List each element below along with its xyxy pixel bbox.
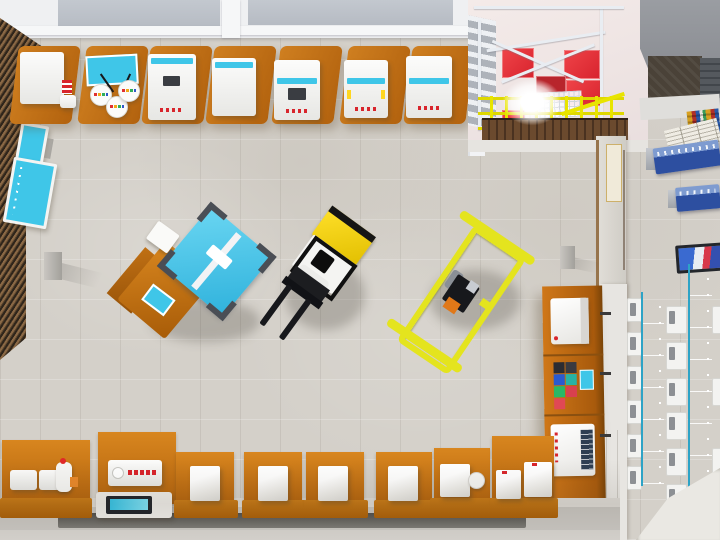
shelf-seam (544, 413, 604, 416)
white-pad[interactable] (10, 470, 37, 490)
classroom-chair[interactable] (627, 332, 642, 356)
machine-cabinet-5[interactable] (274, 60, 320, 120)
storage-cube[interactable] (190, 466, 220, 501)
workstation-3-seat (174, 500, 238, 518)
ceiling-panel (58, 0, 220, 28)
machine-cabinet-7[interactable] (406, 56, 452, 118)
pedestal-left (44, 252, 62, 280)
classroom-chair[interactable] (627, 466, 642, 490)
classroom-chair[interactable] (666, 378, 687, 406)
cyan-band (347, 78, 385, 84)
shelf-peg (600, 312, 611, 315)
workstation-5-seat (304, 500, 368, 518)
shelf-seam (543, 353, 603, 356)
cabinet-screen (163, 76, 180, 86)
part-box-pink[interactable] (554, 398, 565, 409)
test-pod[interactable] (118, 80, 140, 102)
part-box-green[interactable] (554, 386, 565, 397)
red-led (554, 336, 558, 340)
cyan-band (409, 78, 449, 84)
pod-leds (110, 105, 124, 108)
shelf-machine-top[interactable] (550, 298, 589, 345)
storage-cube[interactable] (388, 466, 418, 501)
bench-tablet[interactable] (106, 496, 152, 514)
pod-leds (122, 89, 136, 92)
ceiling-panel (248, 0, 453, 25)
wall-wood-trim (596, 140, 599, 300)
machine-cabinet-3[interactable] (148, 54, 196, 120)
fork-left (259, 284, 292, 326)
dark-storeroom (648, 56, 702, 98)
storage-cube[interactable] (318, 466, 348, 501)
part-box-black[interactable] (553, 362, 564, 373)
classroom-chair-partial[interactable] (712, 306, 720, 334)
corner-bracket (246, 243, 277, 274)
control-panel (581, 430, 594, 470)
cyan-header (151, 58, 193, 64)
walkway-strip (0, 530, 620, 540)
red-mark (502, 471, 507, 474)
cyan-tag (580, 370, 594, 390)
corner-bracket (206, 290, 237, 321)
classroom-chair[interactable] (627, 434, 642, 458)
classroom-chair[interactable] (666, 342, 687, 370)
red-dot-wall-unit[interactable] (108, 460, 162, 486)
red-dot-row (128, 470, 156, 475)
machine-drawer[interactable] (60, 95, 76, 108)
tablet-screen (110, 499, 148, 510)
steel-beam (474, 6, 624, 9)
indicator-row (418, 106, 442, 110)
indicator-row (160, 108, 184, 112)
case-items (679, 188, 715, 195)
classroom-chair[interactable] (627, 400, 642, 424)
dividing-wall-upper (596, 136, 626, 306)
fork-right (279, 298, 312, 340)
classroom-chair[interactable] (666, 412, 687, 440)
cnc-worktable[interactable] (98, 187, 288, 378)
arm-joint (70, 477, 78, 487)
workshop-scene (0, 0, 720, 540)
storage-cube[interactable] (496, 470, 521, 499)
pod-leds (94, 93, 108, 96)
shelf-peg (600, 434, 611, 437)
indicator-row (355, 107, 379, 111)
mezzanine-lift[interactable] (468, 0, 648, 152)
part-box-blue[interactable] (554, 374, 565, 385)
storage-cube[interactable] (524, 462, 552, 497)
workstation-8-seat (490, 498, 558, 518)
dial (112, 467, 124, 479)
cyan-band (277, 78, 317, 84)
classroom-chair[interactable] (627, 366, 642, 390)
yellow-label (347, 90, 351, 99)
yellow-label (381, 90, 385, 99)
wall-edge-line (623, 150, 625, 270)
cyan-header (215, 62, 253, 68)
red-cartridge-rack (62, 80, 72, 94)
corner-bracket (197, 202, 228, 233)
round-fitting (468, 472, 485, 489)
storeroom-cabinet (700, 58, 720, 98)
classroom-chair[interactable] (666, 448, 687, 476)
red-mark (532, 463, 537, 466)
case-items (657, 144, 715, 156)
machine-press[interactable] (20, 52, 64, 104)
classroom-chair-partial[interactable] (712, 378, 720, 406)
indicator-row (286, 109, 310, 113)
classroom-chair[interactable] (666, 306, 687, 334)
cabinet-screen (288, 88, 306, 100)
workstation-6-seat (374, 500, 436, 518)
tool-display-case-a[interactable] (653, 140, 720, 175)
classroom-chair[interactable] (627, 298, 642, 322)
ceiling-beam (222, 0, 240, 38)
workstation-7-seat (430, 498, 494, 518)
vertical-plaque (606, 144, 622, 202)
workstation-1-seat (0, 498, 92, 518)
board-dots (12, 167, 22, 215)
classroom-desk-1[interactable] (641, 292, 664, 486)
red-led-column (555, 432, 559, 462)
part-box-red[interactable] (566, 386, 577, 397)
part-box-gray[interactable] (565, 362, 576, 373)
shelf-machine-bottom[interactable] (551, 424, 596, 477)
shelf-peg (600, 372, 611, 375)
machine-cabinet-6[interactable] (344, 60, 388, 118)
pedestal-right (560, 246, 575, 269)
tool-display-case-b[interactable] (675, 184, 720, 212)
fitting-box[interactable] (440, 464, 470, 497)
work-light-glare (494, 72, 570, 132)
storage-cube[interactable] (258, 466, 288, 501)
machine-cabinet-4[interactable] (212, 58, 256, 116)
part-box-teal[interactable] (566, 374, 577, 385)
machine-side (580, 298, 589, 344)
robot-arm-red-tip (60, 458, 66, 464)
workstation-4-seat (242, 500, 306, 518)
